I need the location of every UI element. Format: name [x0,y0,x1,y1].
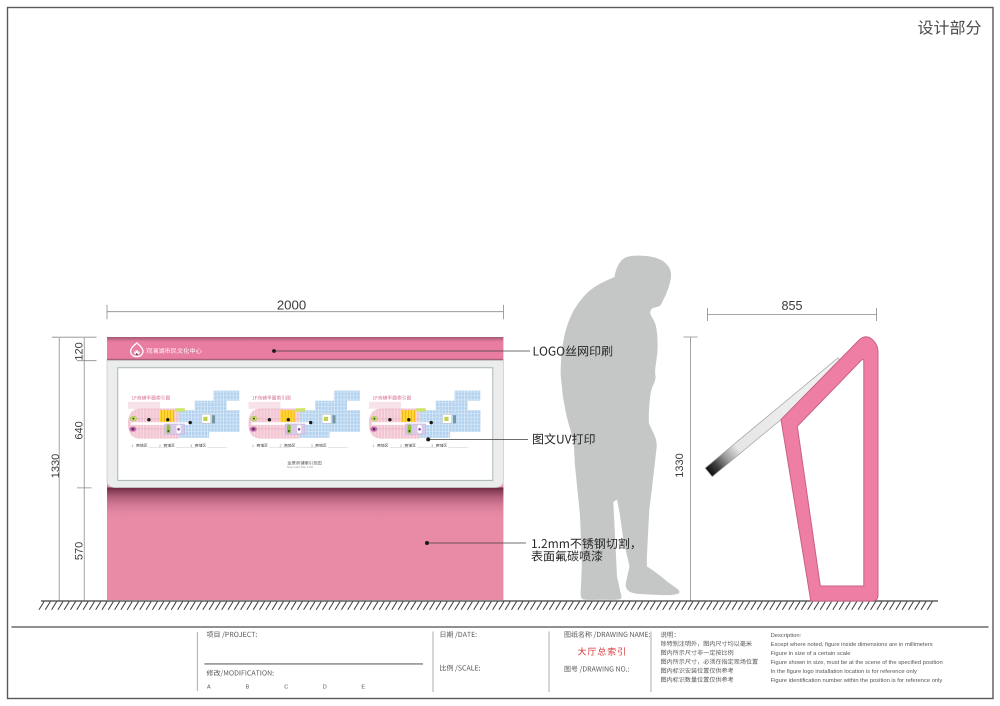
svg-text:570: 570 [73,542,85,560]
svg-text:C: C [284,685,288,691]
svg-text:1: 1 [132,444,134,448]
svg-text:D: D [323,685,327,691]
svg-text:Shop Index Plan 1:100: Shop Index Plan 1:100 [287,465,314,469]
svg-text:2000: 2000 [277,298,306,313]
svg-text:855: 855 [781,299,802,313]
svg-text:640: 640 [73,421,85,439]
svg-text:Figure in size of a certain sc: Figure in size of a certain scale [771,651,851,657]
svg-text:1330: 1330 [50,454,62,478]
svg-text:Figure identification number w: Figure identification number within the … [771,678,943,684]
svg-text:A: A [207,685,211,691]
svg-text:2: 2 [159,444,161,448]
svg-text:Except where noted, figure ins: Except where noted, figure inside dimens… [771,642,933,648]
svg-text:E: E [361,685,365,691]
svg-text:120: 120 [73,342,85,360]
svg-text:Description:: Description: [771,633,802,639]
svg-text:3: 3 [190,444,192,448]
svg-text:B: B [246,685,250,691]
svg-text:1330: 1330 [674,453,686,477]
svg-text:Figure shown in size, must be: Figure shown in size, must be at the sce… [771,660,943,666]
svg-text:In the figure logo installatio: In the figure logo installation location… [771,669,917,675]
